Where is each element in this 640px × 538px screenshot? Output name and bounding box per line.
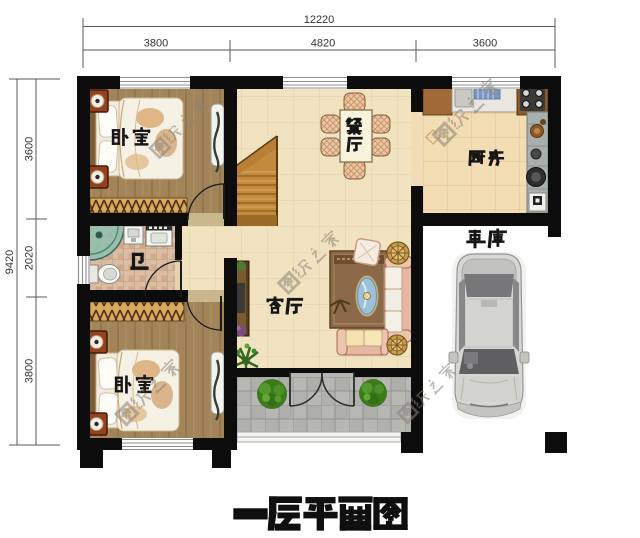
svg-text:3600: 3600 [24, 137, 36, 161]
svg-text:12220: 12220 [304, 14, 335, 26]
svg-text:3800: 3800 [24, 359, 36, 383]
svg-text:3800: 3800 [144, 38, 168, 50]
svg-text:4820: 4820 [311, 38, 335, 50]
svg-text:3600: 3600 [473, 38, 497, 50]
svg-text:2020: 2020 [24, 246, 36, 270]
svg-text:9420: 9420 [4, 250, 16, 274]
